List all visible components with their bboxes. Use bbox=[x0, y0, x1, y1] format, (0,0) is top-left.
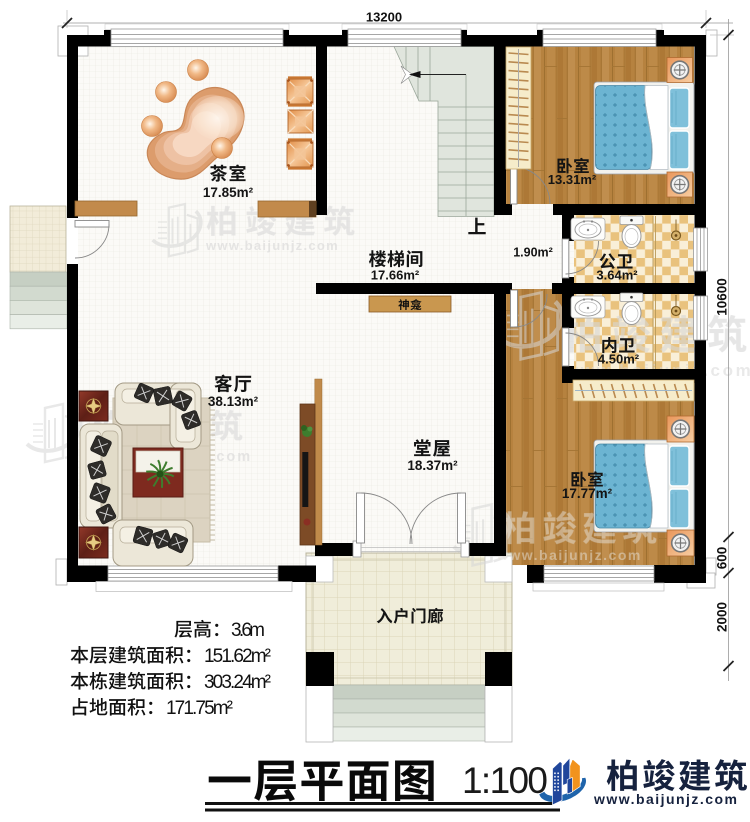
svg-text:www.baijunjz.com: www.baijunjz.com bbox=[593, 791, 737, 807]
svg-text:3.64m²: 3.64m² bbox=[596, 268, 638, 283]
svg-text:13.31m²: 13.31m² bbox=[548, 172, 597, 187]
svg-text:17.77m²: 17.77m² bbox=[562, 486, 613, 501]
svg-text:17.85m²: 17.85m² bbox=[203, 185, 254, 200]
svg-text:303.24m²: 303.24m² bbox=[204, 672, 271, 693]
svg-text:10600: 10600 bbox=[715, 278, 730, 316]
svg-text:1.90m²: 1.90m² bbox=[513, 246, 553, 260]
svg-text:38.13m²: 38.13m² bbox=[208, 394, 259, 409]
svg-text:www.baijunjz.com: www.baijunjz.com bbox=[496, 547, 642, 563]
svg-text:3.6m: 3.6m bbox=[231, 620, 265, 641]
svg-text:www.baijunjz.com: www.baijunjz.com bbox=[205, 238, 339, 253]
svg-text:4.50m²: 4.50m² bbox=[598, 352, 640, 367]
svg-text:17.66m²: 17.66m² bbox=[371, 268, 420, 283]
svg-text:151.62m²: 151.62m² bbox=[204, 646, 271, 667]
svg-text:171.75m²: 171.75m² bbox=[166, 698, 233, 719]
svg-text:2000: 2000 bbox=[715, 602, 730, 632]
svg-text:1:100: 1:100 bbox=[462, 760, 548, 801]
svg-text:18.37m²: 18.37m² bbox=[407, 458, 458, 473]
svg-text:13200: 13200 bbox=[366, 10, 402, 25]
svg-text:600: 600 bbox=[715, 547, 730, 570]
